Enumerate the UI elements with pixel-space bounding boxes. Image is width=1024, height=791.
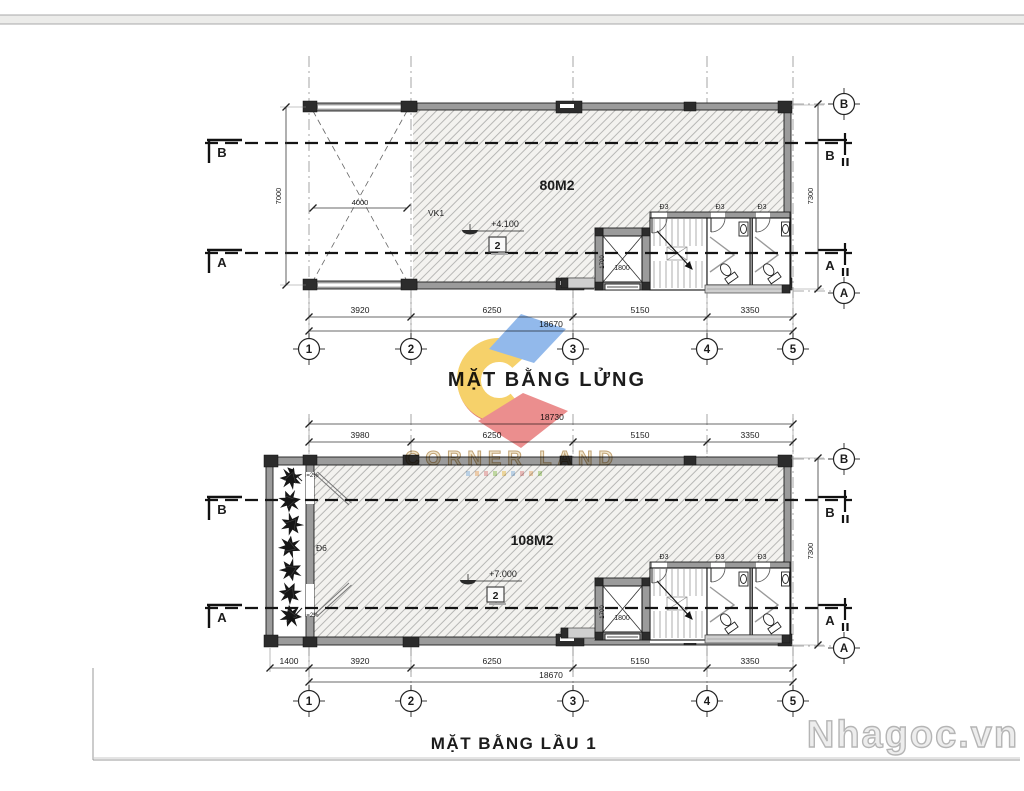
corner-land-logo: CORNER LAND bbox=[405, 314, 619, 476]
door-label: Đ3 bbox=[660, 204, 669, 211]
grid-bubble-4: 4 bbox=[704, 344, 711, 356]
dim-right-label: 7300 bbox=[806, 188, 815, 205]
dim-right-label: 7300 bbox=[806, 543, 815, 560]
dim-label: 3350 bbox=[741, 305, 760, 315]
dim-label: 3980 bbox=[351, 430, 370, 440]
dim-label: 5150 bbox=[631, 430, 650, 440]
grid-bubble-B: B bbox=[840, 99, 848, 111]
mezzanine-plan bbox=[303, 101, 792, 293]
void-cross bbox=[313, 111, 407, 281]
lift-width-label: 1800 bbox=[614, 265, 630, 272]
logo-slogan-dots bbox=[466, 471, 542, 476]
section-marker-B-left: B bbox=[217, 502, 226, 517]
floor1-area-label: 108M2 bbox=[511, 532, 554, 548]
floor1-plan bbox=[264, 455, 792, 647]
grid-bubble-1: 1 bbox=[306, 344, 313, 356]
grid-bubble-A: A bbox=[840, 643, 848, 655]
lift-depth-label: 1700 bbox=[600, 255, 606, 269]
grid-bubble-5: 5 bbox=[790, 344, 797, 356]
section-marker-A-right: A bbox=[825, 613, 835, 628]
dim-label: 1400 bbox=[280, 656, 299, 666]
dim-label: 5150 bbox=[631, 656, 650, 666]
section-marker-A-left: A bbox=[217, 255, 227, 270]
grid-bubble-A: A bbox=[840, 288, 848, 300]
dim-label: 3350 bbox=[741, 430, 760, 440]
brand-watermark: CORNER LAND bbox=[405, 448, 619, 470]
grid-bubble-2: 2 bbox=[408, 344, 414, 356]
grid-bubble-4: 4 bbox=[704, 696, 711, 708]
door-label: Đ3 bbox=[716, 554, 725, 561]
door-label: Đ3 bbox=[758, 204, 767, 211]
lift-width-label: 1800 bbox=[614, 615, 630, 622]
door-label: Đ3 bbox=[660, 554, 669, 561]
grid-bubble-3: 3 bbox=[570, 344, 576, 356]
level-box-number: 2 bbox=[495, 240, 501, 252]
level-label: +4.100 bbox=[491, 219, 519, 229]
dim-label: 6250 bbox=[483, 305, 502, 315]
section-marker-B-right: B bbox=[825, 505, 834, 520]
section-marker-B-left: B bbox=[217, 145, 226, 160]
section-marker-B-right: B bbox=[825, 148, 834, 163]
balcony-door-label: Đ6 bbox=[316, 543, 327, 553]
dim-label: 3920 bbox=[351, 656, 370, 666]
void-dim-label: 4000 bbox=[352, 198, 369, 207]
dim-total-label: 18670 bbox=[539, 670, 563, 680]
lift-depth-label: 1700 bbox=[600, 605, 606, 619]
dim-label: 5150 bbox=[631, 305, 650, 315]
dim-label: 3920 bbox=[351, 305, 370, 315]
slope-label: i=2% bbox=[305, 473, 319, 479]
dim-label: 6250 bbox=[483, 656, 502, 666]
floor1-title: MẶT BẰNG LẦU 1 bbox=[431, 734, 597, 753]
dim-label: 3350 bbox=[741, 656, 760, 666]
grid-bubble-1: 1 bbox=[306, 696, 313, 708]
grid-bubble-3: 3 bbox=[570, 696, 576, 708]
site-watermark: Nhagoc.vn bbox=[807, 714, 1019, 756]
section-marker-A-right: A bbox=[825, 258, 835, 273]
floorplan-sheet: 1 2 3 4 5 B A 1 2 3 4 5 B A B A B A 3920… bbox=[0, 0, 1024, 791]
mezzanine-area-label: 80M2 bbox=[539, 177, 574, 193]
section-marker-A-left: A bbox=[217, 610, 227, 625]
floorplan-canvas: 1 2 3 4 5 B A 1 2 3 4 5 B A B A B A 3920… bbox=[0, 0, 1024, 791]
level-label: +7.000 bbox=[489, 569, 517, 579]
grid-bubble-2: 2 bbox=[408, 696, 414, 708]
slope-label: i=2% bbox=[305, 613, 319, 619]
vk-label: VK1 bbox=[428, 208, 444, 218]
grid-bubble-B: B bbox=[840, 454, 848, 466]
level-box-number: 2 bbox=[493, 590, 499, 602]
grid-bubble-5: 5 bbox=[790, 696, 797, 708]
door-label: Đ3 bbox=[716, 204, 725, 211]
balcony-plants bbox=[275, 465, 307, 628]
door-label: Đ3 bbox=[758, 554, 767, 561]
dim-left-label: 7000 bbox=[274, 188, 283, 205]
